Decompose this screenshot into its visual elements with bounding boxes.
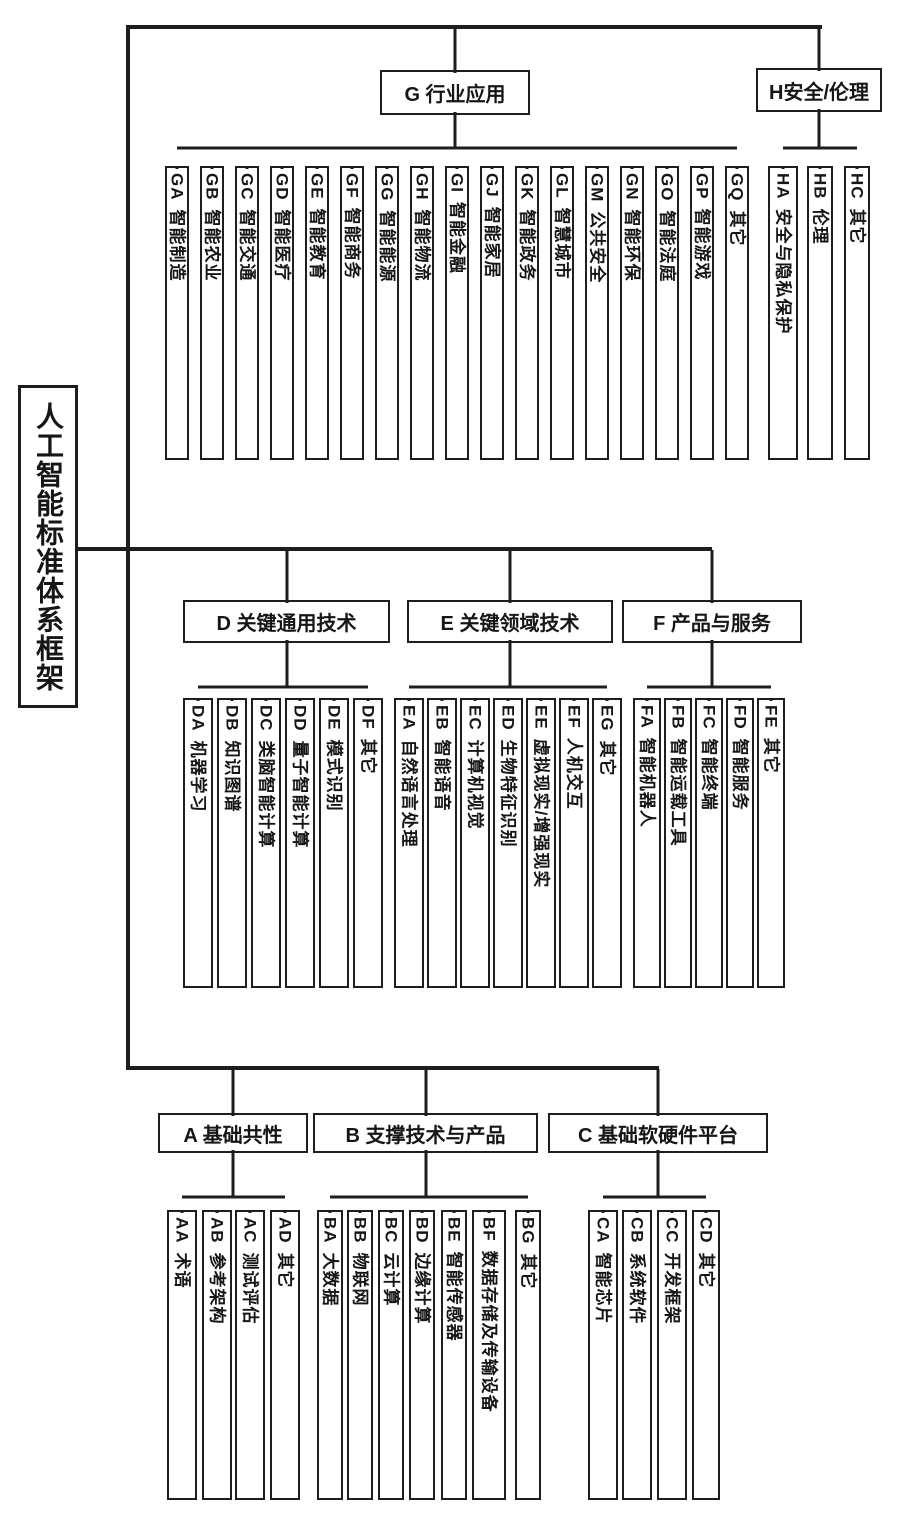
category-A-title: A 基础共性 (183, 1119, 282, 1148)
node-label: 云计算 (382, 1253, 401, 1307)
node-label: 测试评估 (241, 1253, 260, 1325)
node-code: ED (499, 705, 518, 731)
node-label: 其它 (762, 738, 781, 774)
node-label: 智能家居 (483, 207, 502, 279)
node-label: 智能法庭 (658, 210, 677, 282)
node-label: 其它 (276, 1253, 295, 1289)
node-FD: FD智能服务 (726, 698, 754, 988)
node-FB: FB智能运载工具 (664, 698, 692, 988)
node-label: 智能终端 (700, 739, 719, 811)
node-AC: AC测试评估 (235, 1210, 265, 1500)
category-C-title: C 基础软硬件平台 (578, 1119, 738, 1148)
node-label: 智能物流 (413, 210, 432, 282)
node-code: GE (308, 173, 327, 200)
node-code: GQ (728, 173, 747, 201)
node-label: 智能机器人 (638, 738, 657, 828)
node-label: 智能农业 (203, 210, 222, 282)
category-C: C 基础软硬件平台 (548, 1113, 768, 1153)
node-label: 其它 (697, 1253, 716, 1289)
node-EE: EE虚拟现实/增强现实 (526, 698, 556, 988)
node-label: 系统软件 (628, 1253, 647, 1325)
node-label: 计算机视觉 (466, 740, 485, 830)
node-GA: GA智能制造 (165, 166, 189, 460)
node-label: 物联网 (351, 1253, 370, 1307)
node-code: DA (189, 705, 208, 732)
node-label: 大数据 (321, 1253, 340, 1307)
node-GM: GM公共安全 (585, 166, 609, 460)
node-code: HB (811, 173, 830, 200)
node-code: FD (731, 705, 750, 730)
node-label: 其它 (598, 741, 617, 777)
node-label: 其它 (519, 1254, 538, 1290)
node-label: 智能医疗 (273, 210, 292, 282)
node-HA: HA安全与隐私保护 (768, 166, 798, 460)
node-BA: BA大数据 (317, 1210, 343, 1500)
node-code: GJ (483, 173, 502, 198)
node-code: HC (848, 173, 867, 200)
node-code: GI (448, 173, 467, 193)
node-BB: BB物联网 (347, 1210, 373, 1500)
node-code: GH (413, 173, 432, 201)
node-AA: AA术语 (167, 1210, 197, 1500)
node-label: 模式识别 (325, 740, 344, 812)
node-label: 智慧城市 (553, 208, 572, 280)
node-label: 知识图谱 (223, 741, 242, 813)
node-code: AD (276, 1217, 295, 1244)
node-label: 智能金融 (448, 202, 467, 274)
node-label: 伦理 (811, 209, 830, 245)
node-label: 智能游戏 (693, 209, 712, 281)
node-label: 人机交互 (565, 738, 584, 810)
node-code: GD (273, 173, 292, 201)
node-CD: CD其它 (692, 1210, 720, 1500)
category-F-title: F 产品与服务 (653, 607, 771, 636)
node-GH: GH智能物流 (410, 166, 434, 460)
node-GB: GB智能农业 (200, 166, 224, 460)
node-label: 量子智能计算 (291, 741, 310, 849)
node-label: 自然语言处理 (400, 740, 419, 848)
node-code: CA (594, 1217, 613, 1244)
node-code: BC (382, 1217, 401, 1244)
node-GL: GL智慧城市 (550, 166, 574, 460)
node-FC: FC智能终端 (695, 698, 723, 988)
category-H-title: H安全/伦理 (769, 76, 869, 105)
node-GE: GE智能教育 (305, 166, 329, 460)
framework-title: 人工智能标准体系框架 (28, 402, 68, 692)
node-EA: EA自然语言处理 (394, 698, 424, 988)
node-FE: FE其它 (757, 698, 785, 988)
category-A: A 基础共性 (158, 1113, 308, 1153)
node-label: 边缘计算 (413, 1253, 432, 1325)
node-GC: GC智能交通 (235, 166, 259, 460)
node-label: 智能服务 (731, 739, 750, 811)
node-label: 智能能源 (378, 210, 397, 282)
node-label: 智能教育 (308, 209, 327, 281)
node-GQ: GQ其它 (725, 166, 749, 460)
category-E: E 关键领域技术 (407, 600, 613, 643)
node-DD: DD量子智能计算 (285, 698, 315, 988)
category-B-title: B 支撑技术与产品 (346, 1119, 506, 1148)
node-label: 安全与隐私保护 (774, 209, 793, 335)
node-code: DD (291, 705, 310, 732)
node-code: GM (588, 173, 607, 202)
node-ED: ED生物特征识别 (493, 698, 523, 988)
node-label: 参考架构 (208, 1253, 227, 1325)
category-D: D 关键通用技术 (183, 600, 390, 643)
node-code: BA (321, 1217, 340, 1244)
node-GF: GF智能商务 (340, 166, 364, 460)
node-code: GN (623, 173, 642, 201)
node-GP: GP智能游戏 (690, 166, 714, 460)
node-code: CD (697, 1217, 716, 1244)
category-G: G 行业应用 (380, 70, 530, 115)
node-label: 智能政务 (518, 210, 537, 282)
node-code: FA (638, 705, 657, 729)
node-CB: CB系统软件 (622, 1210, 652, 1500)
node-code: GA (168, 173, 187, 201)
node-GK: GK智能政务 (515, 166, 539, 460)
category-E-title: E 关键领域技术 (441, 607, 580, 636)
node-GJ: GJ智能家居 (480, 166, 504, 460)
node-label: 其它 (848, 209, 867, 245)
node-label: 智能交通 (238, 210, 257, 282)
node-DC: DC类脑智能计算 (251, 698, 281, 988)
node-code: EB (433, 705, 452, 731)
node-label: 其它 (359, 739, 378, 775)
node-code: GK (518, 173, 537, 201)
node-label: 机器学习 (189, 741, 208, 813)
node-code: AB (208, 1217, 227, 1244)
node-code: CC (663, 1217, 682, 1244)
node-code: EG (598, 705, 617, 732)
node-HC: HC其它 (844, 166, 870, 460)
node-code: FB (669, 705, 688, 730)
node-GI: GI智能金融 (445, 166, 469, 460)
node-code: DF (359, 705, 378, 730)
node-code: FE (762, 705, 781, 729)
node-GN: GN智能环保 (620, 166, 644, 460)
node-code: GL (553, 173, 572, 199)
category-H: H安全/伦理 (756, 68, 882, 112)
node-label: 术语 (173, 1253, 192, 1289)
node-DF: DF其它 (353, 698, 383, 988)
node-HB: HB伦理 (807, 166, 833, 460)
node-BD: BD边缘计算 (409, 1210, 435, 1500)
framework-diagram: 人工智能标准体系框架 G 行业应用 H安全/伦理 D 关键通用技术 E 关键领域… (0, 0, 908, 1521)
category-D-title: D 关键通用技术 (217, 607, 357, 636)
node-label: 智能语音 (433, 740, 452, 812)
node-code: GO (658, 173, 677, 201)
node-EF: EF人机交互 (559, 698, 589, 988)
node-label: 智能芯片 (594, 1253, 613, 1325)
node-code: GP (693, 173, 712, 200)
node-GD: GD智能医疗 (270, 166, 294, 460)
node-BF: BF数据存储及传输设备 (472, 1210, 506, 1500)
node-CC: CC开发框架 (657, 1210, 687, 1500)
framework-title-box: 人工智能标准体系框架 (18, 385, 78, 708)
node-AB: AB参考架构 (202, 1210, 232, 1500)
category-G-title: G 行业应用 (404, 78, 505, 107)
node-code: FC (700, 705, 719, 730)
node-DE: DE模式识别 (319, 698, 349, 988)
node-code: CB (628, 1217, 647, 1244)
node-code: GF (343, 173, 362, 199)
node-EB: EB智能语音 (427, 698, 457, 988)
node-CA: CA智能芯片 (588, 1210, 618, 1500)
node-label: 开发框架 (663, 1253, 682, 1325)
node-code: DC (257, 705, 276, 732)
node-label: 智能商务 (343, 208, 362, 280)
node-code: AA (173, 1217, 192, 1244)
node-label: 智能传感器 (445, 1252, 464, 1342)
node-label: 虚拟现实/增强现实 (532, 739, 551, 889)
node-label: 类脑智能计算 (257, 741, 276, 849)
node-BG: BG其它 (515, 1210, 541, 1500)
node-label: 其它 (728, 210, 747, 246)
node-code: BF (480, 1217, 499, 1242)
category-F: F 产品与服务 (622, 600, 802, 643)
node-label: 数据存储及传输设备 (480, 1251, 499, 1413)
category-B: B 支撑技术与产品 (313, 1113, 538, 1153)
node-code: GB (203, 173, 222, 201)
node-code: EF (565, 705, 584, 729)
node-label: 生物特征识别 (499, 740, 518, 848)
node-code: AC (241, 1217, 260, 1244)
node-code: EA (400, 705, 419, 731)
node-FA: FA智能机器人 (633, 698, 661, 988)
node-code: HA (774, 173, 793, 200)
node-code: BG (519, 1217, 538, 1245)
node-code: EC (466, 705, 485, 731)
node-label: 公共安全 (588, 211, 607, 283)
node-code: BD (413, 1217, 432, 1244)
node-label: 智能制造 (168, 210, 187, 282)
node-code: DB (223, 705, 242, 732)
node-code: GC (238, 173, 257, 201)
node-BC: BC云计算 (378, 1210, 404, 1500)
node-DB: DB知识图谱 (217, 698, 247, 988)
node-code: EE (532, 705, 551, 730)
node-code: DE (325, 705, 344, 731)
node-DA: DA机器学习 (183, 698, 213, 988)
node-label: 智能运载工具 (669, 739, 688, 847)
node-label: 智能环保 (623, 210, 642, 282)
node-code: BE (445, 1217, 464, 1243)
node-GO: GO智能法庭 (655, 166, 679, 460)
node-EC: EC计算机视觉 (460, 698, 490, 988)
node-EG: EG其它 (592, 698, 622, 988)
node-code: GG (378, 173, 397, 201)
node-GG: GG智能能源 (375, 166, 399, 460)
node-BE: BE智能传感器 (441, 1210, 467, 1500)
node-code: BB (351, 1217, 370, 1244)
node-AD: AD其它 (270, 1210, 300, 1500)
